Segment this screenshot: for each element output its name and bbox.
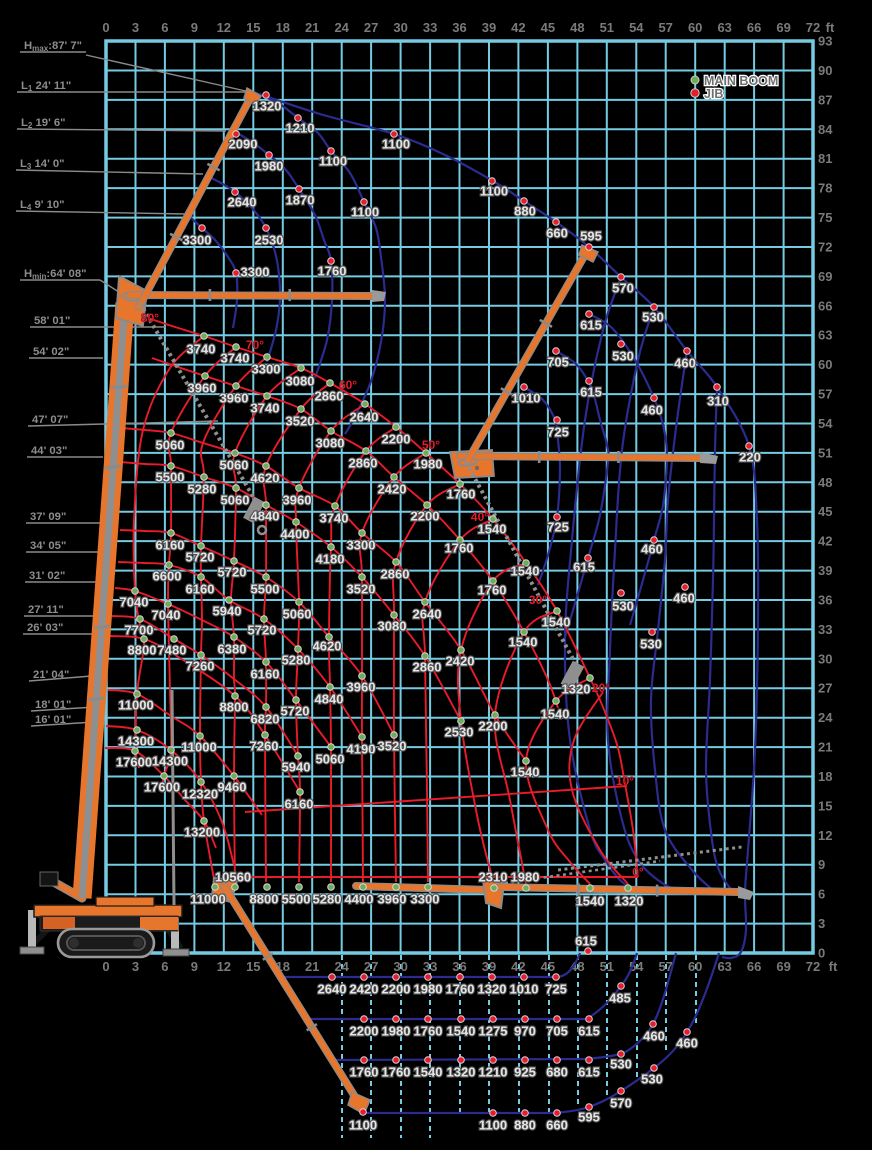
svg-text:36: 36 — [818, 593, 832, 608]
svg-text:21: 21 — [818, 740, 832, 755]
svg-text:81: 81 — [818, 151, 832, 166]
svg-text:5060: 5060 — [220, 458, 249, 473]
svg-text:1540: 1540 — [511, 564, 540, 579]
svg-text:51: 51 — [818, 445, 832, 460]
svg-text:725: 725 — [547, 425, 569, 440]
svg-text:925: 925 — [514, 1065, 536, 1080]
svg-text:5500: 5500 — [156, 470, 185, 485]
svg-text:48: 48 — [818, 475, 832, 490]
svg-text:2200: 2200 — [382, 982, 411, 997]
svg-text:460: 460 — [641, 403, 663, 418]
svg-text:66: 66 — [818, 298, 832, 313]
svg-text:27' 11": 27' 11" — [28, 604, 64, 616]
svg-text:0°: 0° — [632, 865, 644, 879]
svg-text:3960: 3960 — [220, 391, 249, 406]
svg-text:970: 970 — [514, 1024, 536, 1039]
svg-text:1760: 1760 — [414, 1024, 443, 1039]
svg-text:10°: 10° — [616, 774, 634, 788]
svg-text:615: 615 — [578, 1065, 600, 1080]
svg-text:33: 33 — [423, 959, 437, 974]
svg-text:0: 0 — [818, 946, 825, 961]
svg-text:5280: 5280 — [313, 892, 342, 907]
svg-text:3300: 3300 — [183, 233, 212, 248]
svg-text:460: 460 — [676, 1036, 698, 1051]
svg-text:6160: 6160 — [186, 582, 215, 597]
svg-text:2310: 2310 — [479, 870, 508, 885]
svg-text:5280: 5280 — [282, 653, 311, 668]
svg-text:1320: 1320 — [447, 1065, 476, 1080]
svg-text:69: 69 — [776, 20, 790, 35]
svg-text:1540: 1540 — [541, 707, 570, 722]
svg-text:1100: 1100 — [349, 1118, 377, 1133]
svg-text:54' 02": 54' 02" — [33, 346, 69, 358]
svg-text:5720: 5720 — [281, 704, 310, 719]
svg-text:1210: 1210 — [479, 1065, 508, 1080]
svg-text:42: 42 — [818, 534, 832, 549]
svg-text:60: 60 — [688, 20, 702, 35]
svg-text:3960: 3960 — [347, 680, 376, 695]
svg-text:7480: 7480 — [158, 643, 187, 658]
svg-text:57: 57 — [658, 20, 672, 35]
svg-text:1540: 1540 — [576, 894, 605, 909]
svg-text:1540: 1540 — [542, 615, 571, 630]
svg-text:10560: 10560 — [215, 870, 251, 885]
svg-text:3960: 3960 — [378, 892, 407, 907]
svg-text:1320: 1320 — [562, 682, 591, 697]
svg-text:1320: 1320 — [615, 894, 644, 909]
svg-text:60: 60 — [818, 357, 832, 372]
svg-text:3080: 3080 — [286, 374, 315, 389]
svg-text:1540: 1540 — [478, 522, 507, 537]
svg-text:7040: 7040 — [152, 608, 181, 623]
svg-text:58' 01": 58' 01" — [34, 315, 70, 327]
svg-text:705: 705 — [547, 355, 569, 370]
svg-text:6380: 6380 — [218, 642, 247, 657]
svg-text:30: 30 — [818, 651, 832, 666]
svg-text:69: 69 — [818, 269, 832, 284]
svg-text:21: 21 — [305, 959, 319, 974]
svg-text:34' 05": 34' 05" — [30, 540, 66, 552]
svg-text:5280: 5280 — [188, 482, 217, 497]
svg-text:7040: 7040 — [120, 595, 149, 610]
svg-text:66: 66 — [747, 959, 761, 974]
svg-text:4400: 4400 — [345, 892, 374, 907]
svg-text:6160: 6160 — [251, 667, 280, 682]
svg-text:2200: 2200 — [411, 509, 440, 524]
svg-text:4190: 4190 — [347, 742, 376, 757]
svg-text:660: 660 — [546, 1118, 568, 1133]
svg-text:2090: 2090 — [229, 137, 258, 152]
svg-text:9460: 9460 — [218, 780, 247, 795]
svg-text:93: 93 — [818, 34, 832, 49]
svg-text:1760: 1760 — [446, 982, 475, 997]
svg-text:1100: 1100 — [382, 137, 410, 152]
svg-text:3740: 3740 — [187, 342, 216, 357]
svg-text:15: 15 — [246, 20, 260, 35]
svg-text:3300: 3300 — [241, 265, 270, 280]
svg-text:24: 24 — [818, 710, 833, 725]
svg-text:1320: 1320 — [478, 982, 507, 997]
svg-text:42: 42 — [511, 959, 525, 974]
svg-text:1760: 1760 — [478, 583, 507, 598]
svg-text:24: 24 — [334, 959, 349, 974]
svg-text:39: 39 — [482, 959, 496, 974]
svg-text:2420: 2420 — [378, 482, 407, 497]
svg-text:3740: 3740 — [320, 511, 349, 526]
svg-text:1760: 1760 — [382, 1065, 411, 1080]
svg-text:39: 39 — [818, 563, 832, 578]
svg-text:3: 3 — [132, 20, 139, 35]
svg-text:0: 0 — [102, 20, 109, 35]
svg-text:6: 6 — [161, 20, 168, 35]
svg-text:51: 51 — [600, 959, 614, 974]
svg-text:80°: 80° — [141, 311, 159, 325]
svg-text:1980: 1980 — [414, 457, 443, 472]
svg-text:1100: 1100 — [479, 1118, 507, 1133]
svg-text:725: 725 — [545, 982, 567, 997]
svg-text:615: 615 — [575, 934, 597, 949]
svg-text:2530: 2530 — [255, 233, 284, 248]
svg-text:3520: 3520 — [347, 582, 376, 597]
svg-text:530: 530 — [612, 599, 634, 614]
svg-text:3300: 3300 — [411, 892, 440, 907]
svg-text:17600: 17600 — [144, 780, 180, 795]
svg-text:570: 570 — [610, 1096, 632, 1111]
svg-text:3740: 3740 — [221, 351, 250, 366]
svg-text:5940: 5940 — [282, 760, 311, 775]
svg-text:JIB: JIB — [704, 87, 723, 101]
svg-text:615: 615 — [580, 318, 602, 333]
svg-text:2420: 2420 — [350, 982, 379, 997]
svg-text:725: 725 — [547, 520, 569, 535]
svg-text:36: 36 — [452, 20, 466, 35]
svg-text:6160: 6160 — [285, 797, 314, 812]
svg-text:84: 84 — [818, 122, 833, 137]
svg-text:15: 15 — [818, 798, 832, 813]
svg-text:11000: 11000 — [190, 892, 225, 907]
svg-text:36: 36 — [452, 959, 466, 974]
svg-text:27: 27 — [818, 681, 832, 696]
svg-text:47' 07": 47' 07" — [32, 414, 68, 426]
svg-text:3740: 3740 — [251, 401, 280, 416]
svg-text:54: 54 — [629, 20, 644, 35]
svg-text:3520: 3520 — [286, 414, 315, 429]
svg-text:2860: 2860 — [315, 389, 344, 404]
svg-text:45: 45 — [541, 959, 555, 974]
svg-text:3: 3 — [818, 916, 825, 931]
svg-text:27: 27 — [364, 959, 378, 974]
svg-text:0: 0 — [102, 959, 109, 974]
svg-text:4180: 4180 — [316, 552, 345, 567]
svg-text:3300: 3300 — [347, 538, 376, 553]
svg-text:6820: 6820 — [251, 712, 280, 727]
svg-text:4840: 4840 — [251, 509, 280, 524]
svg-text:2420: 2420 — [446, 654, 475, 669]
svg-text:24: 24 — [334, 20, 349, 35]
svg-text:11000: 11000 — [118, 698, 153, 713]
svg-text:60: 60 — [688, 959, 702, 974]
svg-text:1980: 1980 — [511, 870, 540, 885]
svg-text:75: 75 — [818, 210, 832, 225]
svg-text:4620: 4620 — [313, 639, 342, 654]
svg-text:530: 530 — [610, 1057, 632, 1072]
svg-text:2200: 2200 — [350, 1024, 379, 1039]
svg-text:12: 12 — [217, 959, 231, 974]
svg-text:460: 460 — [643, 1029, 665, 1044]
svg-text:44' 03": 44' 03" — [31, 445, 67, 457]
svg-text:63: 63 — [818, 328, 832, 343]
svg-text:18: 18 — [818, 769, 832, 784]
svg-text:12320: 12320 — [182, 787, 218, 802]
svg-text:ft: ft — [829, 959, 838, 974]
svg-text:530: 530 — [642, 310, 664, 325]
svg-text:1980: 1980 — [414, 982, 443, 997]
svg-text:15: 15 — [246, 959, 260, 974]
svg-text:2640: 2640 — [228, 195, 257, 210]
svg-text:11000: 11000 — [181, 740, 216, 755]
svg-text:1540: 1540 — [511, 765, 540, 780]
svg-text:8800: 8800 — [220, 700, 249, 715]
svg-text:5720: 5720 — [248, 623, 277, 638]
svg-text:3: 3 — [132, 959, 139, 974]
svg-text:1010: 1010 — [510, 982, 539, 997]
svg-text:4400: 4400 — [281, 527, 310, 542]
svg-text:3080: 3080 — [316, 436, 345, 451]
svg-text:MAIN BOOM: MAIN BOOM — [704, 74, 778, 88]
svg-text:21: 21 — [305, 20, 319, 35]
svg-text:570: 570 — [612, 281, 634, 296]
svg-text:20°: 20° — [592, 681, 610, 695]
svg-text:3300: 3300 — [252, 362, 281, 377]
svg-text:2640: 2640 — [350, 410, 379, 425]
svg-text:1870: 1870 — [286, 193, 315, 208]
svg-text:7700: 7700 — [125, 623, 154, 638]
svg-text:39: 39 — [482, 20, 496, 35]
svg-text:57: 57 — [818, 387, 832, 402]
svg-text:1760: 1760 — [445, 541, 474, 556]
svg-text:1010: 1010 — [512, 391, 541, 406]
svg-text:1980: 1980 — [255, 159, 284, 174]
svg-text:8800: 8800 — [128, 643, 157, 658]
svg-text:9: 9 — [191, 959, 198, 974]
svg-text:L2 19' 6": L2 19' 6" — [21, 117, 66, 130]
svg-text:2200: 2200 — [382, 432, 411, 447]
svg-text:30: 30 — [393, 959, 407, 974]
svg-text:33: 33 — [423, 20, 437, 35]
svg-text:595: 595 — [580, 229, 602, 244]
svg-text:3520: 3520 — [378, 739, 407, 754]
svg-text:1275: 1275 — [479, 1024, 508, 1039]
svg-text:485: 485 — [609, 991, 631, 1006]
svg-text:4620: 4620 — [251, 471, 280, 486]
svg-text:2640: 2640 — [413, 607, 442, 622]
svg-text:6: 6 — [161, 959, 168, 974]
svg-text:220: 220 — [739, 450, 761, 465]
svg-text:5940: 5940 — [213, 604, 242, 619]
svg-text:33: 33 — [818, 622, 832, 637]
svg-text:530: 530 — [640, 637, 662, 652]
svg-text:5060: 5060 — [221, 493, 250, 508]
svg-text:615: 615 — [573, 560, 595, 575]
svg-text:5720: 5720 — [186, 550, 215, 565]
svg-text:530: 530 — [641, 1072, 663, 1087]
svg-text:615: 615 — [580, 385, 602, 400]
svg-text:48: 48 — [570, 20, 584, 35]
svg-text:595: 595 — [578, 1110, 600, 1125]
svg-text:14300: 14300 — [152, 754, 188, 769]
svg-text:72: 72 — [818, 240, 832, 255]
svg-text:680: 680 — [546, 1065, 568, 1080]
svg-text:17600: 17600 — [116, 755, 152, 770]
svg-text:63: 63 — [717, 959, 731, 974]
svg-text:1540: 1540 — [509, 635, 538, 650]
svg-text:1320: 1320 — [253, 99, 282, 114]
svg-text:615: 615 — [578, 1024, 600, 1039]
svg-text:45: 45 — [818, 504, 832, 519]
svg-text:6160: 6160 — [156, 538, 185, 553]
svg-text:78: 78 — [818, 181, 832, 196]
svg-text:31' 02": 31' 02" — [29, 570, 65, 582]
svg-text:2860: 2860 — [413, 660, 442, 675]
svg-text:30: 30 — [393, 20, 407, 35]
svg-text:4840: 4840 — [315, 692, 344, 707]
svg-text:1760: 1760 — [318, 264, 347, 279]
svg-text:66: 66 — [747, 20, 761, 35]
svg-text:2640: 2640 — [318, 982, 347, 997]
svg-text:1980: 1980 — [382, 1024, 411, 1039]
svg-text:14300: 14300 — [118, 734, 154, 749]
svg-text:2860: 2860 — [349, 456, 378, 471]
svg-text:530: 530 — [612, 349, 634, 364]
svg-text:1100: 1100 — [351, 205, 379, 220]
svg-text:18: 18 — [276, 20, 290, 35]
svg-text:5500: 5500 — [251, 582, 280, 597]
svg-text:2200: 2200 — [479, 719, 508, 734]
svg-text:5500: 5500 — [282, 892, 311, 907]
svg-text:880: 880 — [514, 204, 536, 219]
svg-text:460: 460 — [674, 356, 696, 371]
svg-text:6600: 6600 — [153, 569, 182, 584]
svg-text:7260: 7260 — [186, 659, 215, 674]
svg-text:42: 42 — [511, 20, 525, 35]
svg-text:12: 12 — [818, 828, 832, 843]
svg-text:2860: 2860 — [381, 567, 410, 582]
svg-text:7260: 7260 — [250, 739, 279, 754]
svg-text:87: 87 — [818, 92, 832, 107]
svg-text:37' 09": 37' 09" — [30, 511, 66, 523]
svg-text:51: 51 — [600, 20, 614, 35]
svg-text:13200: 13200 — [184, 825, 220, 840]
svg-text:1760: 1760 — [447, 487, 476, 502]
svg-text:5060: 5060 — [156, 438, 185, 453]
svg-text:5060: 5060 — [283, 607, 312, 622]
svg-text:L3 14' 0": L3 14' 0" — [20, 158, 65, 171]
svg-text:6: 6 — [818, 887, 825, 902]
svg-text:3960: 3960 — [283, 493, 312, 508]
svg-text:1210: 1210 — [286, 121, 315, 136]
svg-text:12: 12 — [217, 20, 231, 35]
svg-text:90: 90 — [818, 63, 832, 78]
svg-text:8800: 8800 — [250, 892, 279, 907]
svg-text:310: 310 — [707, 394, 729, 409]
svg-text:30°: 30° — [529, 593, 547, 607]
svg-text:660: 660 — [546, 226, 568, 241]
svg-text:9: 9 — [818, 857, 825, 872]
svg-text:705: 705 — [546, 1024, 568, 1039]
svg-text:L4 9' 10": L4 9' 10" — [20, 199, 65, 212]
svg-text:1540: 1540 — [447, 1024, 476, 1039]
svg-text:5720: 5720 — [218, 565, 247, 580]
svg-text:26' 03": 26' 03" — [27, 622, 63, 634]
svg-text:460: 460 — [673, 591, 695, 606]
svg-text:1100: 1100 — [319, 154, 347, 169]
svg-text:69: 69 — [776, 959, 790, 974]
svg-text:1760: 1760 — [350, 1065, 379, 1080]
svg-text:5060: 5060 — [316, 752, 345, 767]
svg-text:63: 63 — [717, 20, 731, 35]
svg-text:1540: 1540 — [414, 1065, 443, 1080]
svg-text:72: 72 — [806, 959, 820, 974]
svg-text:3080: 3080 — [378, 619, 407, 634]
svg-text:3960: 3960 — [188, 381, 217, 396]
svg-text:45: 45 — [541, 20, 555, 35]
svg-text:1100: 1100 — [480, 184, 508, 199]
svg-text:27: 27 — [364, 20, 378, 35]
svg-text:2530: 2530 — [445, 725, 474, 740]
svg-text:9: 9 — [191, 20, 198, 35]
svg-text:54: 54 — [818, 416, 833, 431]
svg-text:460: 460 — [641, 542, 663, 557]
svg-text:880: 880 — [514, 1118, 536, 1133]
